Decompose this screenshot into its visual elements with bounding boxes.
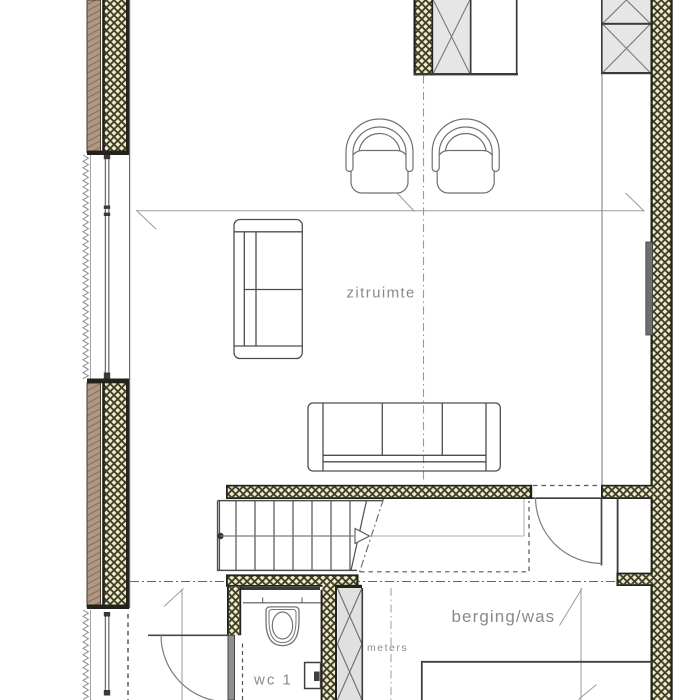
svg-text:zitruimte: zitruimte (347, 285, 416, 302)
svg-text:meters: meters (367, 642, 408, 654)
svg-text:wc 1: wc 1 (253, 672, 293, 689)
svg-text:berging/was: berging/was (452, 607, 556, 626)
